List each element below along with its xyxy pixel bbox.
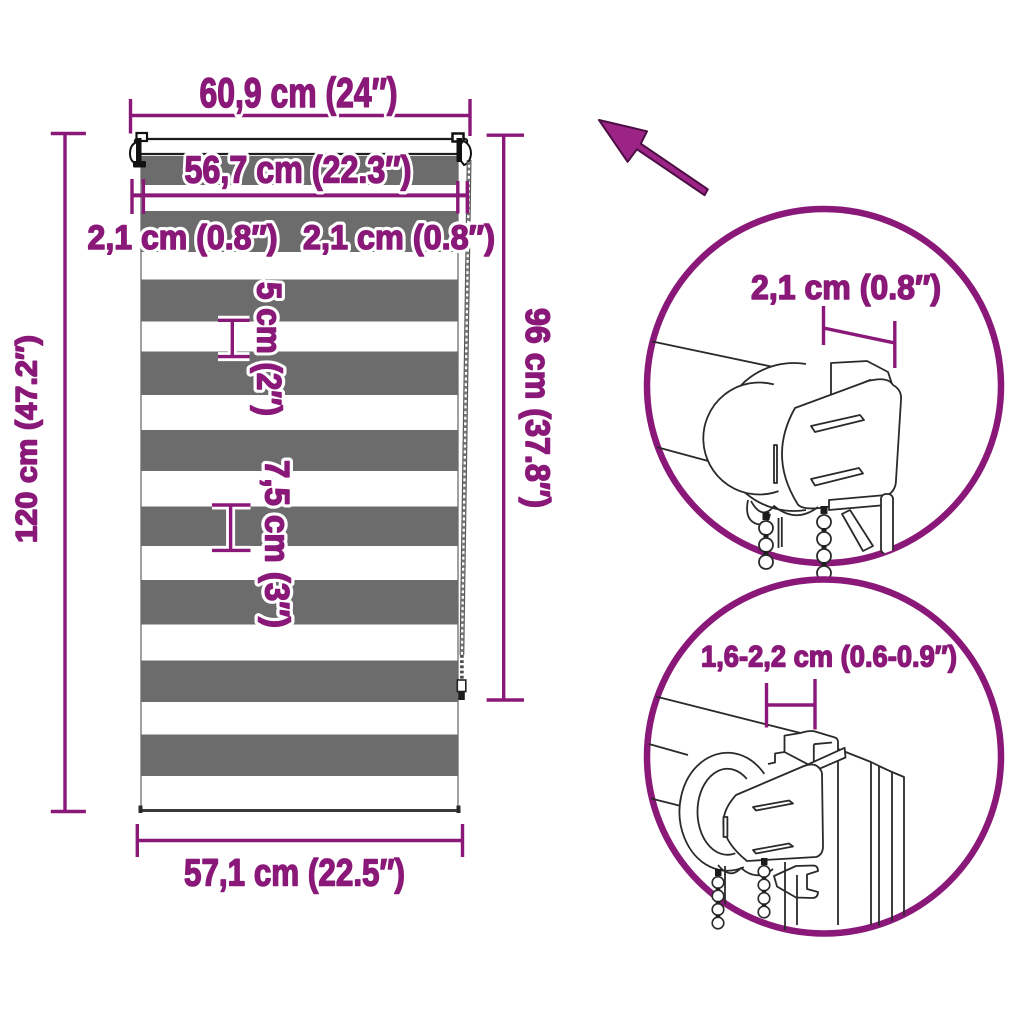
svg-text:120 cm (47.2″): 120 cm (47.2″) <box>11 335 44 543</box>
svg-text:60,9 cm (24″): 60,9 cm (24″) <box>200 69 398 116</box>
svg-text:1,6-2,2 cm (0.6-0.9″): 1,6-2,2 cm (0.6-0.9″) <box>701 641 957 674</box>
svg-text:96 cm (37.8″): 96 cm (37.8″) <box>518 308 556 508</box>
svg-text:2,1 cm (0.8″): 2,1 cm (0.8″) <box>303 219 495 257</box>
svg-text:2,1 cm (0.8″): 2,1 cm (0.8″) <box>88 219 278 257</box>
svg-text:2,1 cm (0.8″): 2,1 cm (0.8″) <box>751 269 941 307</box>
svg-text:56,7 cm (22.3″): 56,7 cm (22.3″) <box>185 150 412 192</box>
svg-text:5 cm (2″): 5 cm (2″) <box>250 282 288 416</box>
svg-text:57,1 cm (22.5″): 57,1 cm (22.5″) <box>184 853 405 895</box>
svg-text:7,5 cm (3″): 7,5 cm (3″) <box>258 460 296 628</box>
